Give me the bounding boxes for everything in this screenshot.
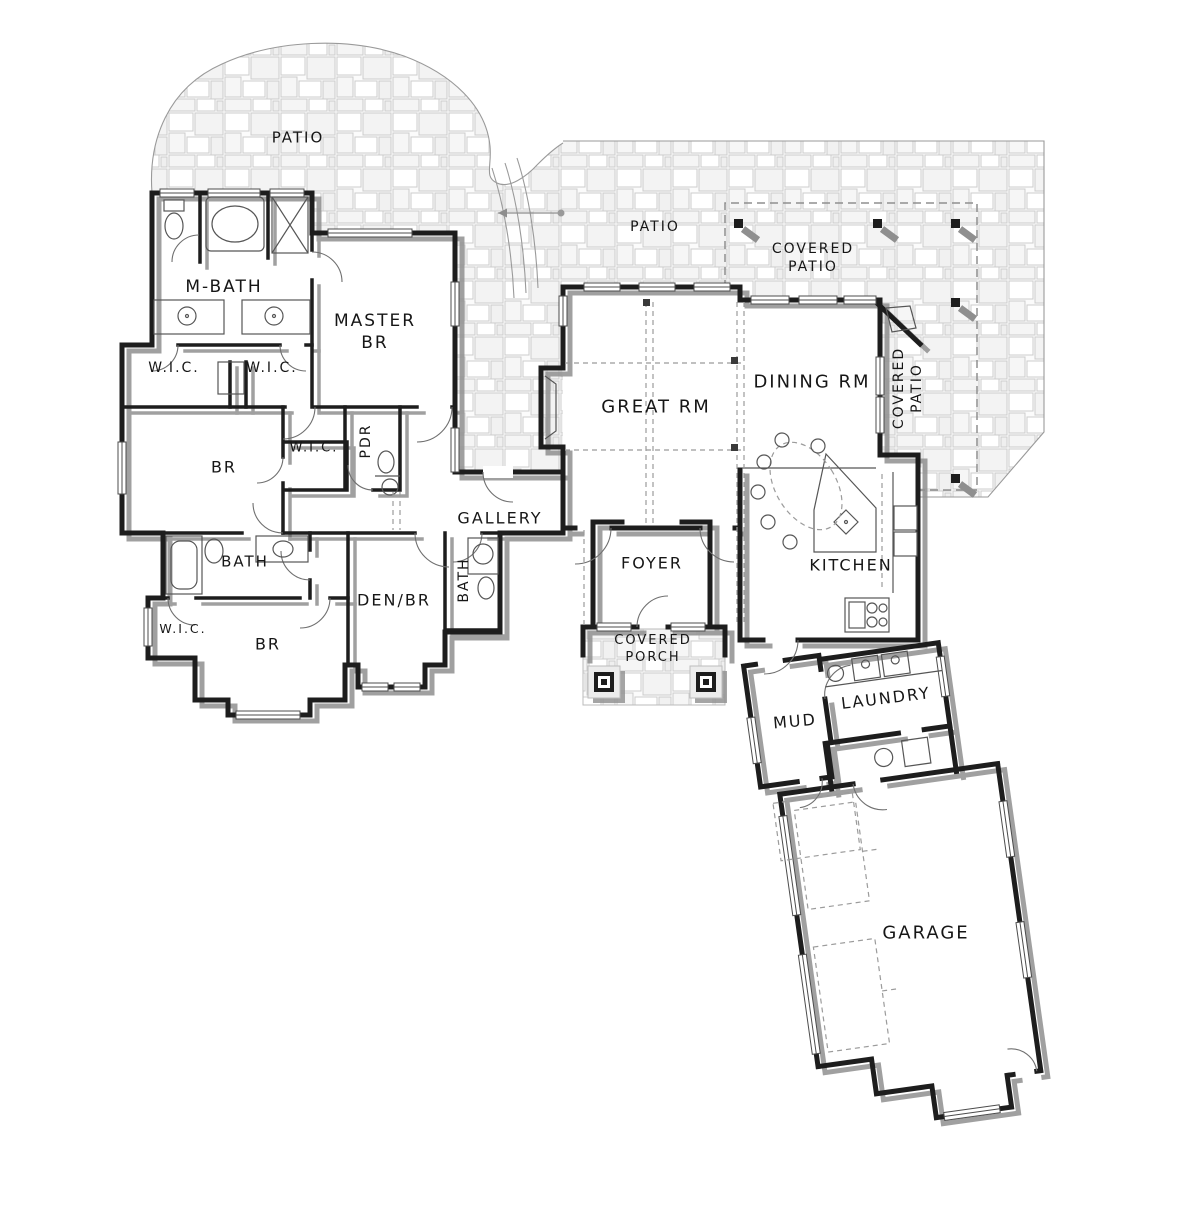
room-label-pdr: PDR [357,424,375,459]
room-label-br-middle: BR [211,458,237,479]
floor-plan-drawing [0,0,1200,1213]
room-label-garage: GARAGE [882,921,969,944]
room-label-covered-porch: COVERED PORCH [614,633,691,667]
room-label-den-br: DEN/BR [357,591,431,612]
room-label-covered-patio-e: COVERED PATIO [890,347,926,429]
room-label-bath-den: BATH [455,557,473,602]
room-label-dining-rm: DINING RM [753,370,870,393]
refrigerator [894,506,917,530]
room-label-wic-master-right: W.I.C. [246,359,298,377]
room-label-br-sw: BR [255,635,281,656]
room-label-covered-patio-n: COVERED PATIO [772,240,854,276]
room-label-master-br: MASTER BR [334,310,416,354]
room-label-patio-nw: PATIO [272,128,325,148]
range [845,598,889,632]
room-label-wic-middle: W.I.C. [290,441,339,458]
floor-plan-page: PATIO PATIO COVERED PATIO COVERED PATIO … [0,0,1200,1213]
room-label-foyer: FOYER [621,554,683,575]
room-label-great-rm: GREAT RM [601,395,711,418]
room-label-wic-master-left: W.I.C. [148,359,200,377]
room-label-gallery: GALLERY [457,509,542,530]
room-label-m-bath: M-BATH [185,276,262,298]
room-label-patio-n: PATIO [630,218,680,236]
room-label-wic-sw: W.I.C. [159,621,206,637]
room-label-bath-hall: BATH [221,552,269,572]
room-label-kitchen: KITCHEN [809,556,892,577]
room-label-mud: MUD [772,710,817,735]
